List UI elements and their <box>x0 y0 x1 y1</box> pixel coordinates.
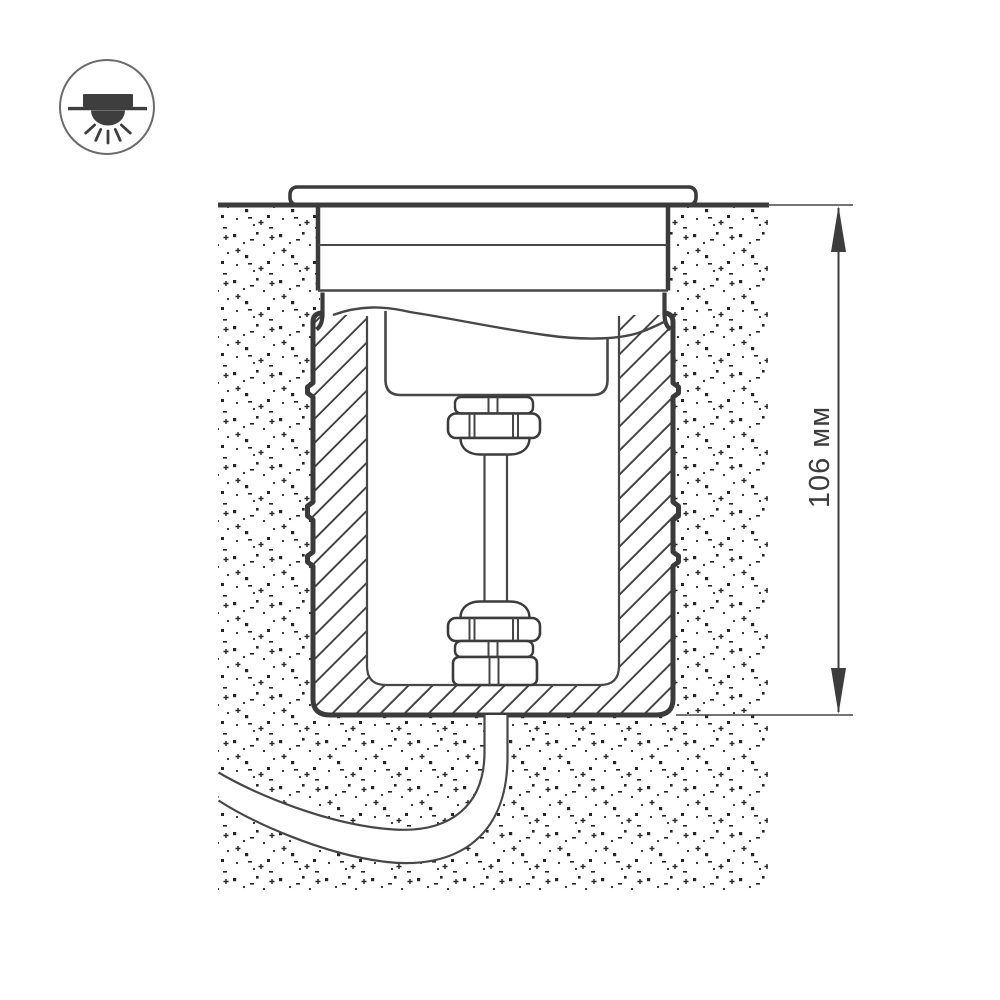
cable-gland-top <box>448 397 540 455</box>
neck-fill <box>320 291 667 316</box>
arrow-up-icon <box>831 206 846 252</box>
fixture-housing <box>316 205 670 293</box>
gland-bottom-base-block <box>453 657 537 685</box>
recessed-light-icon <box>60 60 154 154</box>
gland-top-dome <box>461 438 530 455</box>
arrow-down-icon <box>831 668 846 714</box>
gland-bottom-dome <box>461 602 530 619</box>
gland-top-small-nut <box>455 397 533 414</box>
cable-gland-bottom <box>448 602 540 686</box>
flange-trim-ring <box>290 187 696 205</box>
installation-diagram-page: 106 мм <box>0 0 1000 1000</box>
gland-bottom-large-nut <box>448 618 540 641</box>
gland-bottom-small-nut <box>455 641 533 657</box>
gland-top-large-nut <box>448 414 540 439</box>
installation-diagram: 106 мм <box>0 0 1000 1000</box>
icon-fixture-body <box>83 94 133 107</box>
housing-fill <box>316 205 670 293</box>
dimension-label: 106 мм <box>804 406 836 508</box>
